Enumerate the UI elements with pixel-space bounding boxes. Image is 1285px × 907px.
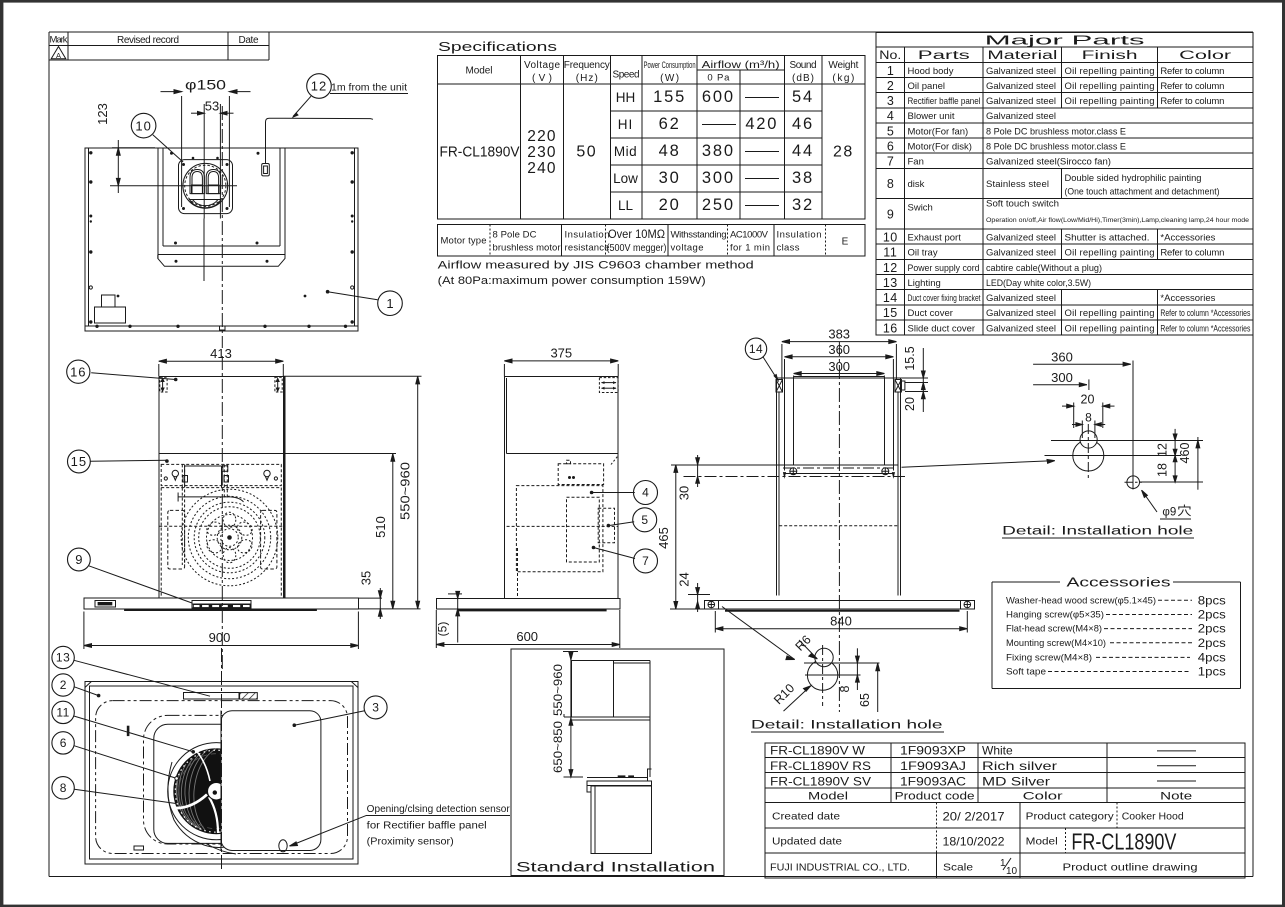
- svg-text:8pcs: 8pcs: [1198, 593, 1226, 607]
- svg-text:12: 12: [883, 261, 898, 275]
- svg-text:300: 300: [702, 169, 735, 187]
- svg-text:413: 413: [210, 346, 232, 361]
- svg-text:Insulation: Insulation: [777, 230, 822, 241]
- svg-text:(At 80Pa:maximum power consump: (At 80Pa:maximum power consumption 159W): [438, 275, 706, 287]
- svg-text:Scale: Scale: [943, 862, 973, 874]
- svg-text:383: 383: [828, 327, 850, 342]
- svg-text:Galvanized steel: Galvanized steel: [986, 248, 1056, 259]
- svg-text:Fan: Fan: [908, 157, 924, 168]
- svg-text:HI: HI: [618, 117, 634, 132]
- svg-text:Detail: Installation hole: Detail: Installation hole: [1002, 526, 1193, 538]
- svg-text:Specifications: Specifications: [438, 40, 557, 54]
- svg-text:550~960: 550~960: [398, 462, 413, 520]
- svg-text:11: 11: [56, 706, 69, 720]
- svg-text:240: 240: [527, 160, 556, 177]
- svg-text:Double sided hydrophilic paint: Double sided hydrophilic painting: [1065, 173, 1202, 184]
- svg-text:Cooker Hood: Cooker Hood: [1122, 811, 1184, 823]
- svg-text:Revised record: Revised record: [117, 35, 179, 46]
- svg-text:0 Pa: 0 Pa: [707, 73, 730, 84]
- svg-text:15: 15: [883, 306, 898, 320]
- svg-text:6: 6: [60, 736, 67, 750]
- svg-text:Galvanized steel: Galvanized steel: [986, 308, 1056, 319]
- svg-text:Galvanized steel: Galvanized steel: [986, 81, 1056, 92]
- svg-text:7: 7: [887, 155, 894, 169]
- svg-text:14: 14: [883, 291, 898, 305]
- svg-text:MD Silver: MD Silver: [982, 774, 1050, 788]
- svg-text:650~850: 650~850: [553, 721, 565, 773]
- svg-text:White: White: [982, 744, 1013, 758]
- svg-text:2pcs: 2pcs: [1198, 636, 1226, 650]
- svg-text:Color: Color: [1023, 790, 1063, 802]
- svg-text:65: 65: [858, 693, 872, 707]
- svg-text:E: E: [842, 237, 849, 248]
- svg-text:230: 230: [527, 144, 556, 161]
- svg-text:123: 123: [95, 103, 110, 125]
- svg-text:220: 220: [527, 128, 556, 145]
- svg-text:Motor(For disk): Motor(For disk): [908, 142, 972, 153]
- svg-text:*Accessories: *Accessories: [1160, 293, 1215, 304]
- svg-text:2pcs: 2pcs: [1198, 622, 1226, 636]
- svg-text:Product category: Product category: [1026, 811, 1115, 823]
- svg-text:Model: Model: [1026, 836, 1058, 848]
- svg-text:13: 13: [56, 651, 70, 665]
- svg-text:18: 18: [1156, 463, 1170, 477]
- svg-text:Oil repelling painting: Oil repelling painting: [1065, 248, 1155, 259]
- svg-text:840: 840: [830, 613, 852, 628]
- svg-text:2: 2: [887, 79, 894, 93]
- svg-text:(Proximity sensor): (Proximity sensor): [367, 837, 454, 848]
- svg-text:No.: No.: [879, 50, 901, 62]
- svg-text:Stainless steel: Stainless steel: [986, 179, 1049, 190]
- svg-text:class: class: [777, 243, 800, 254]
- svg-text:Motor(For fan): Motor(For fan): [908, 126, 969, 137]
- svg-text:FR-CL1890V SV: FR-CL1890V SV: [770, 774, 871, 788]
- svg-text:Created date: Created date: [772, 811, 840, 823]
- svg-text:62: 62: [659, 115, 681, 133]
- svg-text:8 Pole DC brushless motor.clas: 8 Pole DC brushless motor.class E: [986, 142, 1126, 153]
- svg-text:Galvanized steel: Galvanized steel: [986, 66, 1056, 77]
- svg-text:Oil tray: Oil tray: [908, 248, 938, 259]
- svg-text:1F9093AC: 1F9093AC: [900, 774, 966, 788]
- svg-text:Material: Material: [987, 50, 1057, 62]
- svg-text:A: A: [56, 51, 61, 60]
- svg-text:6: 6: [887, 140, 894, 154]
- svg-text:54: 54: [792, 88, 814, 106]
- svg-text:resistance: resistance: [565, 243, 610, 254]
- svg-text:φ9: φ9: [1162, 507, 1176, 519]
- svg-text:4: 4: [887, 109, 894, 123]
- svg-text:Withsstanding: Withsstanding: [671, 230, 727, 241]
- svg-text:24: 24: [677, 572, 692, 586]
- svg-text:Oil repelling painting: Oil repelling painting: [1065, 66, 1155, 77]
- svg-text:Refer to column: Refer to column: [1160, 81, 1224, 92]
- svg-text:Updated date: Updated date: [772, 836, 842, 848]
- svg-text:Swich: Swich: [908, 202, 933, 213]
- svg-text:Mark: Mark: [50, 35, 68, 46]
- svg-text:1pcs: 1pcs: [1198, 665, 1226, 679]
- svg-text:8: 8: [60, 781, 67, 795]
- svg-text:*Accessories: *Accessories: [1160, 233, 1215, 244]
- svg-text:Accessories: Accessories: [1067, 576, 1171, 590]
- svg-text:10: 10: [1006, 866, 1018, 877]
- svg-text:Low: Low: [613, 171, 638, 186]
- svg-text:Soft touch switch: Soft touch switch: [986, 199, 1059, 210]
- svg-text:5: 5: [641, 513, 648, 527]
- svg-text:Voltage: Voltage: [524, 60, 560, 71]
- svg-text:Oil repelling painting: Oil repelling painting: [1065, 323, 1155, 334]
- svg-text:10: 10: [135, 118, 151, 133]
- svg-text:35: 35: [359, 571, 374, 585]
- svg-text:Operation on/off,Air flow(Low/: Operation on/off,Air flow(Low/Mid/Hi),Ti…: [986, 217, 1250, 224]
- svg-text:3: 3: [372, 701, 379, 715]
- svg-text:8: 8: [838, 685, 852, 692]
- svg-text:Refer to column: Refer to column: [1160, 96, 1224, 107]
- svg-text:18/10/2022: 18/10/2022: [943, 835, 1005, 849]
- svg-text:cabtire cable(Without a plug): cabtire cable(Without a plug): [986, 263, 1102, 274]
- svg-text:Refer to column: Refer to column: [1160, 248, 1224, 259]
- svg-text:Flat-head screw(M4×8): Flat-head screw(M4×8): [1006, 624, 1102, 635]
- svg-text:8 Pole DC: 8 Pole DC: [493, 230, 537, 241]
- svg-text:Oil repelling painting: Oil repelling painting: [1065, 96, 1155, 107]
- svg-text:Opening/clsing detection senso: Opening/clsing detection sensor: [367, 804, 511, 815]
- svg-text:Mounting screw(M4×10): Mounting screw(M4×10): [1006, 638, 1106, 649]
- svg-text:14: 14: [749, 342, 763, 356]
- svg-text:for Rectifier baffle panel: for Rectifier baffle panel: [367, 820, 487, 831]
- svg-text:465: 465: [656, 527, 671, 549]
- svg-text:FR-CL1890V RS: FR-CL1890V RS: [770, 759, 871, 773]
- svg-text:(W): (W): [660, 73, 679, 84]
- svg-text:Model: Model: [808, 790, 848, 802]
- svg-text:46: 46: [792, 115, 814, 133]
- svg-text:Hanging screw(φ5×35): Hanging screw(φ5×35): [1006, 610, 1104, 621]
- svg-text:11: 11: [883, 246, 897, 260]
- svg-text:LED(Day white color,3.5W): LED(Day white color,3.5W): [986, 278, 1091, 289]
- svg-text:(kg): (kg): [832, 73, 854, 84]
- svg-text:Mid: Mid: [614, 144, 637, 159]
- svg-text:28: 28: [833, 144, 854, 161]
- svg-text:Product outline drawing: Product outline drawing: [1063, 862, 1198, 874]
- svg-text:Oil panel: Oil panel: [908, 81, 946, 92]
- svg-text:600: 600: [516, 629, 538, 644]
- svg-text:Finish: Finish: [1082, 50, 1138, 62]
- svg-text:44: 44: [792, 142, 814, 160]
- svg-text:16: 16: [70, 364, 86, 379]
- svg-text:Rich silver: Rich silver: [982, 759, 1057, 773]
- svg-text:510: 510: [373, 516, 388, 538]
- svg-text:Note: Note: [1160, 790, 1192, 802]
- svg-text:2pcs: 2pcs: [1198, 608, 1226, 622]
- svg-text:Galvanized steel: Galvanized steel: [986, 233, 1056, 244]
- svg-text:φ150: φ150: [185, 77, 226, 93]
- svg-text:20: 20: [1081, 392, 1095, 406]
- svg-text:1: 1: [386, 296, 393, 311]
- svg-text:4: 4: [642, 486, 649, 500]
- svg-text:250: 250: [702, 196, 735, 214]
- svg-text:Galvanized steel: Galvanized steel: [986, 111, 1056, 122]
- svg-text:Oil repelling painting: Oil repelling painting: [1065, 81, 1155, 92]
- svg-text:(Hz): (Hz): [576, 73, 598, 84]
- svg-text:1F9093XP: 1F9093XP: [900, 744, 966, 758]
- svg-text:Blower unit: Blower unit: [908, 111, 955, 122]
- svg-text:155: 155: [653, 88, 686, 106]
- svg-text:8 Pole DC brushless motor.clas: 8 Pole DC brushless motor.class E: [986, 126, 1126, 137]
- svg-text:Sound: Sound: [790, 60, 817, 71]
- svg-text:9: 9: [887, 207, 894, 221]
- svg-text:Power supply cord: Power supply cord: [908, 263, 980, 274]
- svg-text:Galvanized steel: Galvanized steel: [986, 293, 1056, 304]
- svg-text:1m from the unit: 1m from the unit: [331, 82, 407, 94]
- svg-text:20/ 2/2017: 20/ 2/2017: [943, 810, 1005, 824]
- svg-text:AC1000V: AC1000V: [730, 230, 769, 241]
- svg-text:Fixing screw(M4×8): Fixing screw(M4×8): [1006, 652, 1092, 663]
- svg-text:600: 600: [702, 88, 735, 106]
- svg-text:Major Parts: Major Parts: [985, 34, 1145, 48]
- svg-text:375: 375: [550, 345, 572, 360]
- svg-text:FR-CL1890V: FR-CL1890V: [440, 145, 520, 161]
- svg-text:Refer to column: Refer to column: [1160, 66, 1224, 77]
- svg-text:Galvanized steel(Sirocco fan): Galvanized steel(Sirocco fan): [986, 157, 1111, 168]
- svg-text:FUJI INDUSTRIAL CO., LTD.: FUJI INDUSTRIAL CO., LTD.: [770, 862, 910, 874]
- svg-text:13: 13: [883, 276, 898, 290]
- svg-text:30: 30: [677, 486, 692, 500]
- svg-text:LL: LL: [618, 198, 634, 213]
- svg-text:voltage: voltage: [671, 243, 704, 254]
- svg-text:Frequency: Frequency: [564, 60, 610, 71]
- svg-text:900: 900: [209, 630, 231, 645]
- svg-text:Power Consumption: Power Consumption: [644, 60, 696, 70]
- svg-text:Product code: Product code: [895, 790, 975, 802]
- svg-text:30: 30: [659, 169, 681, 187]
- svg-text:FR-CL1890V: FR-CL1890V: [1071, 829, 1177, 855]
- svg-text:20: 20: [903, 397, 917, 411]
- svg-text:2: 2: [60, 678, 67, 692]
- svg-text:550~960: 550~960: [553, 664, 565, 716]
- svg-text:20: 20: [659, 196, 681, 214]
- svg-text:38: 38: [792, 169, 814, 187]
- svg-text:Detail: Installation hole: Detail: Installation hole: [751, 720, 943, 732]
- svg-text:Galvanized steel: Galvanized steel: [986, 96, 1056, 107]
- svg-text:15: 15: [71, 454, 87, 469]
- svg-text:Date: Date: [239, 35, 259, 46]
- svg-text:300: 300: [1051, 370, 1073, 385]
- svg-text:Galvanized steel: Galvanized steel: [986, 323, 1056, 334]
- svg-text:Duct cover: Duct cover: [908, 308, 953, 319]
- svg-text:Airflow measured by JIS C9603: Airflow measured by JIS C9603 chamber me…: [438, 260, 754, 272]
- svg-text:Refer to column *Accessories: Refer to column *Accessories: [1160, 308, 1250, 319]
- svg-text:360: 360: [1051, 350, 1073, 365]
- svg-text:53: 53: [205, 99, 219, 114]
- svg-text:disk: disk: [908, 179, 925, 190]
- svg-text:Standard Installation: Standard Installation: [516, 860, 715, 875]
- svg-text:15.5: 15.5: [903, 346, 917, 370]
- svg-text:Over 10MΩ: Over 10MΩ: [608, 229, 665, 241]
- svg-text:Duct cover fixing bracket: Duct cover fixing bracket: [908, 293, 981, 304]
- svg-text:for 1 min: for 1 min: [730, 243, 770, 254]
- svg-text:(V): (V): [532, 73, 552, 84]
- svg-text:48: 48: [659, 142, 681, 160]
- svg-text:9: 9: [75, 552, 82, 567]
- svg-text:Washer-head wood screw(φ5.1×45: Washer-head wood screw(φ5.1×45): [1006, 595, 1156, 606]
- svg-text:460: 460: [1178, 443, 1192, 464]
- svg-text:(One touch attachment and deta: (One touch attachment and detachment): [1065, 187, 1220, 198]
- svg-text:32: 32: [792, 196, 814, 214]
- svg-text:Parts: Parts: [918, 50, 970, 62]
- svg-text:(dB): (dB): [792, 73, 814, 84]
- svg-text:Slide duct cover: Slide duct cover: [908, 323, 976, 334]
- svg-text:8: 8: [887, 177, 894, 191]
- svg-text:brushless motor: brushless motor: [493, 243, 561, 254]
- svg-text:(5): (5): [436, 622, 450, 637]
- svg-text:1F9093AJ: 1F9093AJ: [900, 759, 966, 773]
- svg-text:10: 10: [883, 231, 898, 245]
- svg-text:1: 1: [887, 64, 894, 78]
- svg-text:Weight: Weight: [828, 60, 858, 71]
- svg-text:Speed: Speed: [613, 70, 640, 81]
- svg-text:12: 12: [311, 79, 327, 94]
- svg-text:7: 7: [642, 554, 649, 568]
- svg-text:16: 16: [883, 321, 898, 335]
- svg-text:Shutter is attached.: Shutter is attached.: [1065, 233, 1150, 244]
- svg-text:Hood body: Hood body: [908, 66, 954, 77]
- svg-text:420: 420: [745, 115, 778, 133]
- svg-text:50: 50: [576, 144, 597, 161]
- svg-text:Rectifier baffle panel: Rectifier baffle panel: [908, 96, 981, 107]
- svg-text:5: 5: [887, 124, 894, 138]
- svg-text:8: 8: [1085, 411, 1092, 425]
- svg-text:Insulation: Insulation: [565, 230, 610, 241]
- svg-text:(500V megger): (500V megger): [607, 242, 667, 254]
- svg-text:3: 3: [887, 94, 894, 108]
- svg-text:12: 12: [1156, 443, 1170, 457]
- svg-text:FR-CL1890V W: FR-CL1890V W: [770, 744, 866, 758]
- svg-text:Soft tape: Soft tape: [1006, 667, 1046, 678]
- svg-text:Color: Color: [1179, 50, 1231, 62]
- svg-text:Airflow (m³/h): Airflow (m³/h): [702, 60, 780, 71]
- svg-text:Refer to column *Accessories: Refer to column *Accessories: [1160, 323, 1250, 334]
- svg-text:380: 380: [702, 142, 735, 160]
- svg-text:Lighting: Lighting: [908, 278, 941, 289]
- svg-text:HH: HH: [616, 90, 636, 105]
- svg-text:Oil repelling painting: Oil repelling painting: [1065, 308, 1155, 319]
- svg-text:Exhaust port: Exhaust port: [908, 233, 962, 244]
- svg-text:4pcs: 4pcs: [1198, 650, 1226, 664]
- svg-text:Model: Model: [466, 66, 493, 77]
- svg-text:Motor type: Motor type: [441, 236, 487, 247]
